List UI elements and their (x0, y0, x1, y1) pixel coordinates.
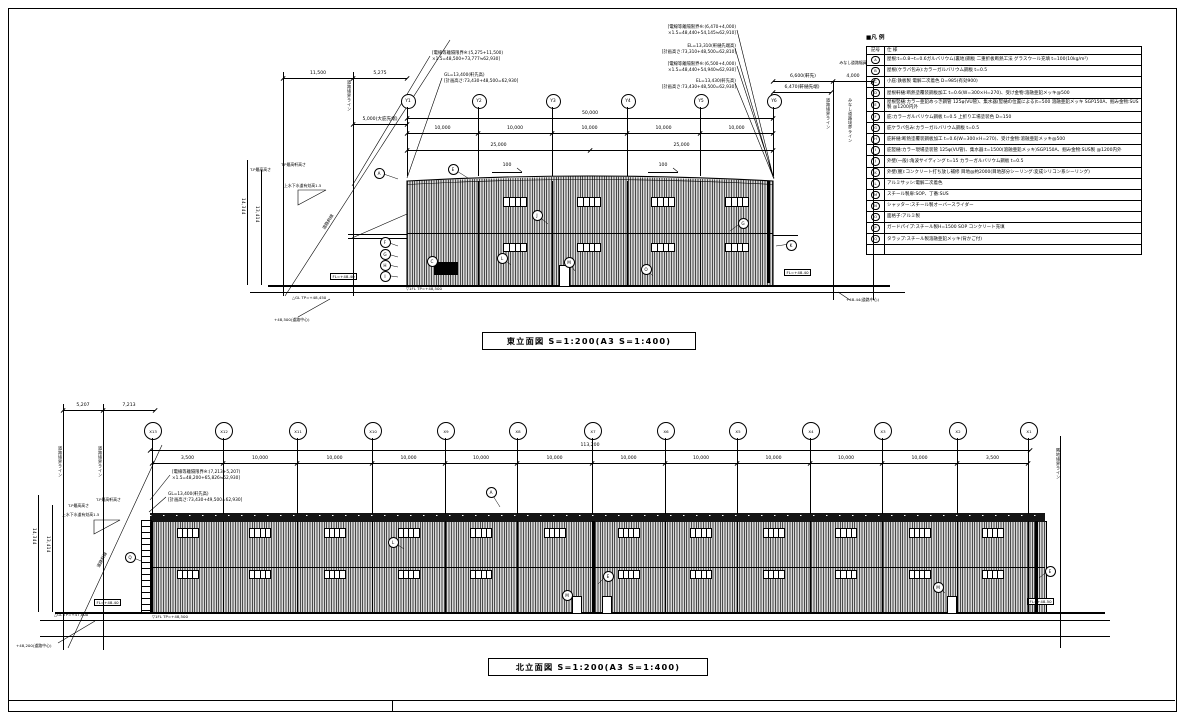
dim-label: 7,213 (122, 404, 135, 409)
north-tp-eave-label: T.P最高軒高さ (96, 498, 121, 502)
legend-symbol-cell: G (867, 123, 885, 134)
roof-slope-line (492, 172, 522, 173)
window (835, 528, 857, 538)
door (559, 265, 570, 287)
window-pane (521, 244, 526, 251)
window-pane (634, 529, 638, 537)
window (177, 570, 199, 579)
callout-bubble: E (1045, 566, 1056, 577)
east-note-clearance-right-1: [電線等離隔限界※:(6,470+4,000) ×1.5=48,440+54,1… (642, 25, 736, 37)
grid-bubble: X8 (509, 422, 527, 440)
window (470, 570, 492, 579)
vdim-label: 13,414 (46, 536, 50, 553)
window (690, 570, 712, 579)
window (763, 570, 785, 579)
window-pane (669, 198, 674, 206)
note-line: ×1.5=48,500+73,777≒62,930] (432, 57, 503, 63)
legend-row: K外壁(腰):コンクリート打ち放し補修 目地@約2000(目地部分シーリング:変… (867, 167, 1142, 178)
grid-bubble: Y1 (401, 94, 416, 109)
canopy-line (348, 234, 407, 235)
legend-empty-row (867, 245, 1142, 255)
road-boundary-line (103, 404, 104, 650)
legend-spec-cell: 小庇:鉄板製 電解二次着色 D=985(有効900) (885, 76, 1142, 87)
note-line: [計画高さ:73,430+49,500=62,930] (168, 498, 242, 504)
north-road-center-level: +48,200(道路中心) (16, 644, 51, 648)
wall-ladder (141, 520, 152, 612)
window-pane (414, 571, 418, 578)
legend-col-spec: 仕 様 (885, 47, 1142, 55)
legend-row: H庇軒樋:断熱塗覆装鋼板加工 t=0.6(W=300×H=270)、受け金物:溶… (867, 134, 1142, 145)
window (503, 243, 527, 252)
grid-bubble: Y2 (472, 94, 487, 109)
deemed-boundary-line (873, 81, 874, 300)
dim-label: 6,600(軒先) (790, 75, 816, 80)
window-pane (998, 529, 1002, 537)
dim-label: 10,000 (838, 457, 854, 462)
window (982, 570, 1004, 579)
bay-joint-line (592, 521, 593, 612)
north-title-text: 北立面図 S=1:200(A3 S=1:400) (516, 661, 680, 673)
dim-label: 10,000 (765, 457, 781, 462)
dim-label: 4,000 (846, 75, 859, 80)
north-elevation-title: 北立面図 S=1:200(A3 S=1:400) (488, 658, 708, 676)
grid-line (552, 107, 553, 177)
east-road-center-level-right: +48.44(道路中心) (846, 298, 879, 302)
legend-symbol-cell: H (867, 134, 885, 145)
extension-line (283, 72, 284, 296)
grid-bubble: X12 (215, 422, 233, 440)
grid-bubble: X10 (364, 422, 382, 440)
window (982, 528, 1004, 538)
north-note-eave-height: GL=13,400(軒先高) [計画高さ:73,430+49,500=62,93… (168, 492, 242, 504)
dim-label: 10,000 (252, 457, 268, 462)
east-facade-siding (407, 176, 773, 285)
legend-spec-cell: タラップ:スチール製溶融亜鉛メッキ(背かご付) (885, 234, 1142, 245)
north-parapet-coping (150, 513, 1045, 522)
legend-row: G庇ケラバ包み:カラーガルバリウム鋼板 t=0.5 (867, 123, 1142, 134)
downspout (767, 181, 770, 283)
legend-title: ■凡 例 (866, 36, 884, 42)
legend-row: C小庇:鉄板製 電解二次着色 D=985(有効900) (867, 76, 1142, 87)
dim-label: 113,200 (581, 444, 600, 449)
window (503, 197, 527, 207)
callout-bubble: G (738, 218, 749, 229)
sheet-bottom-strip-line (8, 700, 1175, 701)
legend-spec-cell: 屋根竪樋:カラー亜鉛めっき鋼管 125φ(VU管)、集水器(竪樋の位置による)t… (885, 99, 1142, 112)
dim-line (283, 78, 407, 79)
bay-joint-line (552, 181, 553, 285)
bay-joint-line (478, 181, 479, 285)
bay-joint-line (882, 521, 883, 612)
east-deemed-road-width-label: みなし道路幅員 (839, 61, 866, 65)
window (651, 243, 675, 252)
legend-symbol-cell: A (867, 54, 885, 65)
grid-bubble: X5 (729, 422, 747, 440)
legend-row: Qタラップ:スチール製溶融亜鉛メッキ(背かご付) (867, 234, 1142, 245)
door (602, 596, 612, 614)
downspout (1035, 521, 1038, 612)
east-title-text: 東立面図 S=1:200(A3 S=1:400) (507, 335, 671, 347)
legend-row: Mスチール製扉:SOP、丁番:SUS (867, 189, 1142, 200)
dim-label: 10,000 (400, 457, 416, 462)
window-pane (925, 529, 929, 537)
legend-spec-cell: ガードパイプ:スチール製H=1500 SOP コンクリート充填 (885, 223, 1142, 234)
window (398, 570, 420, 579)
legend-spec-cell: 庇ケラバ包み:カラーガルバリウム鋼板 t=0.5 (885, 123, 1142, 134)
legend-col-symbol: 記号 (867, 47, 885, 55)
legend-symbol-cell: D (867, 88, 885, 99)
callout-bubble: J (532, 210, 543, 221)
legend-spec-cell: アルミサッシ:電解二次着色 (885, 178, 1142, 189)
bay-joint-line (665, 521, 666, 612)
window-pane (852, 529, 856, 537)
window-pane (707, 571, 711, 578)
window (177, 528, 199, 538)
dim-line (150, 450, 1030, 451)
shutter-door (434, 262, 458, 275)
window (398, 528, 420, 538)
dim-label: 10,000 (620, 457, 636, 462)
legend-symbol-cell: K (867, 167, 885, 178)
dim-label: 5,000(大庇先端) (362, 118, 397, 123)
legend-row: D屋根軒樋:断熱塗覆装鋼板加工 t=0.6(W=300×H=270)、受け金物:… (867, 88, 1142, 99)
window-pane (340, 571, 344, 578)
north-note-clearance: [電線等離隔限界※:(7,213+5,207) ×1.5=48,200+65,8… (172, 470, 240, 482)
window-pane (669, 244, 674, 251)
dim-label: 50,000 (582, 112, 598, 117)
legend-spec-cell: 屋根(ケラバ包み):カラーガルバリウム鋼板 t=0.5 (885, 65, 1142, 76)
grid-line (700, 107, 701, 177)
legend-symbol-cell: M (867, 189, 885, 200)
legend-symbol-cell: F (867, 112, 885, 123)
bay-joint-line (627, 181, 628, 285)
dim-label: 10,000 (911, 457, 927, 462)
legend-spec-cell: 外壁(一般):角波サイディング t=15 カラーガルバリウム鋼板 t=0.5 (885, 156, 1142, 167)
bay-joint-line (517, 521, 518, 612)
ground-line (250, 292, 905, 293)
window (324, 528, 346, 538)
window-pane (414, 529, 418, 537)
window-pane (193, 529, 197, 537)
east-road-boundary-label-right: 道路境界ライン (826, 98, 830, 130)
legend-symbol-cell: N (867, 200, 885, 211)
grid-bubble: Y3 (546, 94, 561, 109)
dim-label: 3,500 (181, 457, 194, 462)
callout-bubble: M (933, 582, 944, 593)
wall-band-line (150, 567, 1045, 568)
drawing-sheet: ■凡 例 記号 仕 様 A屋根:t=0.8~t=0.6ガルバリウム(裏地)鋼板 … (0, 0, 1185, 721)
window (577, 197, 601, 207)
window-pane (779, 529, 783, 537)
window-pane (852, 571, 856, 578)
dim-label: 10,000 (326, 457, 342, 462)
window (470, 528, 492, 538)
callout-bubble: E (448, 164, 459, 175)
vdim-label: 13,414 (255, 206, 259, 223)
legend-symbol-cell: C (867, 76, 885, 87)
dim-label: 25,000 (673, 144, 689, 149)
window-pane (340, 529, 344, 537)
grid-bubble: X7 (584, 422, 602, 440)
vdim-line (247, 160, 248, 285)
legend-symbol-cell: E (867, 99, 885, 112)
east-gl-level-label: △GL TP=+48,450 (292, 296, 326, 300)
dim-label: 5,275 (373, 72, 386, 77)
dim-line (63, 410, 155, 411)
adjacent-boundary-line (1060, 436, 1061, 648)
east-sewer-clearance-label: 上水下水道有効高1.5 (284, 184, 321, 188)
legend-spec-cell: 屋根軒樋:断熱塗覆装鋼板加工 t=0.6(W=300×H=270)、受け金物:溶… (885, 88, 1142, 99)
legend-spec-cell: 庇軒樋:断熱塗覆装鋼板加工 t=0.6(W=300×H=270)、受け金物:溶融… (885, 134, 1142, 145)
callout-bubble: I (380, 271, 391, 282)
vdim-line (261, 170, 262, 285)
legend-symbol-cell: L (867, 178, 885, 189)
grid-bubble: X11 (289, 422, 307, 440)
north-1fl-level-label: ▽1FL TP=+48,500 (152, 615, 188, 619)
dim-line (407, 118, 773, 119)
window-pane (193, 571, 197, 578)
dim-label: 10,000 (581, 127, 597, 132)
sheet-bottom-strip-tick (392, 700, 393, 711)
legend-spec-cell: 屋根:t=0.8~t=0.6ガルバリウム(裏地)鋼板 二重折板断熱工法 グラスウ… (885, 54, 1142, 65)
legend-row: Lアルミサッシ:電解二次着色 (867, 178, 1142, 189)
dim-label: 25,000 (490, 144, 506, 149)
bay-joint-line (445, 521, 446, 612)
window-pane (998, 571, 1002, 578)
legend-symbol-cell: I (867, 145, 885, 156)
legend-symbol-circle: A (871, 56, 880, 65)
canopy-line (773, 235, 798, 236)
note-line: [電線等離隔限界※:(7,213+5,207) (172, 470, 240, 476)
legend-row: O面格子:アルミ製 (867, 211, 1142, 222)
east-roof-slope-mark-2: 100 (659, 164, 668, 169)
road-boundary-line (833, 81, 834, 300)
dim-label: 10,000 (655, 127, 671, 132)
window-pane (266, 571, 270, 578)
east-deemed-boundary-label: みなし道路境界ライン (848, 98, 852, 143)
grid-bubble: X2 (949, 422, 967, 440)
window (618, 528, 640, 538)
legend-symbol-circle: B (871, 67, 880, 76)
callout-bubble: E (603, 571, 614, 582)
east-elevation-title: 東立面図 S=1:200(A3 S=1:400) (482, 332, 696, 350)
dim-label: 11,500 (310, 72, 326, 77)
east-roof-slope-mark-1: 100 (503, 164, 512, 169)
dim-label: 10,000 (693, 457, 709, 462)
callout-bubble: F (380, 237, 391, 248)
north-road-boundary-label-1: 道路境界ライン (58, 446, 62, 478)
dim-label: 10,000 (434, 127, 450, 132)
east-note-eave-height-left: GL=13,400(軒先高) [計画高さ:73,430+48,500=62,93… (444, 73, 518, 85)
legend-row: Pガードパイプ:スチール製H=1500 SOP コンクリート充填 (867, 223, 1142, 234)
vdim-line (38, 495, 39, 612)
callout-bubble: M (564, 257, 575, 268)
grid-bubble: Y5 (694, 94, 709, 109)
note-line: [計画高さ:73,430+48,500=62,930] (642, 85, 736, 91)
east-note-gutter-height: EL=13,310(軒樋先端高) [計画高さ:73,310+48,500=62,… (642, 44, 736, 56)
callout-bubble: H (380, 260, 391, 271)
dim-line (407, 133, 773, 134)
road-boundary-line (353, 72, 354, 296)
window-pane (521, 198, 526, 206)
roof-slope-line (648, 172, 678, 173)
road-boundary-line (63, 404, 64, 650)
grid-bubble: X4 (802, 422, 820, 440)
window (690, 528, 712, 538)
legend-spec-cell: シャッター:スチール製オーバースライダー (885, 200, 1142, 211)
window-pane (634, 571, 638, 578)
legend-row: A屋根:t=0.8~t=0.6ガルバリウム(裏地)鋼板 二重折板断熱工法 グラス… (867, 54, 1142, 65)
legend-header-row: 記号 仕 様 (867, 47, 1142, 55)
callout-bubble: Q (125, 552, 136, 563)
legend-table: 記号 仕 様 A屋根:t=0.8~t=0.6ガルバリウム(裏地)鋼板 二重折板断… (866, 46, 1142, 255)
legend-symbol-cell: P (867, 223, 885, 234)
east-note-clearance-right-2: [電線等離隔限界※:(6,500+4,000) ×1.5=48,440+54,9… (642, 62, 736, 74)
dim-line (773, 92, 831, 93)
grid-bubble: Y4 (621, 94, 636, 109)
note-line: [計画高さ:73,430+48,500=62,930] (444, 79, 518, 85)
bay-joint-line (737, 521, 738, 612)
vdim-label: 14,344 (32, 528, 36, 545)
grid-bubble: X1 (1020, 422, 1038, 440)
window (909, 528, 931, 538)
callout-bubble: G (380, 249, 391, 260)
window-pane (743, 244, 748, 251)
grid-bubble: Y6 (767, 94, 782, 109)
legend-row: Nシャッター:スチール製オーバースライダー (867, 200, 1142, 211)
north-tp-max-label: T.P最高高さ (68, 504, 89, 508)
callout-bubble: A (486, 487, 497, 498)
bay-joint-line (223, 521, 224, 612)
legend-row: E屋根竪樋:カラー亜鉛めっき鋼管 125φ(VU管)、集水器(竪樋の位置による)… (867, 99, 1142, 112)
callout-bubble: K (786, 240, 797, 251)
window-pane (595, 244, 600, 251)
window (835, 570, 857, 579)
door (572, 596, 582, 614)
bay-joint-line (1028, 521, 1029, 612)
window-pane (487, 571, 491, 578)
window-pane (925, 571, 929, 578)
legend-spec-cell: 外壁(腰):コンクリート打ち放し補修 目地@約2000(目地部分シーリング:変成… (885, 167, 1142, 178)
callout-bubble: L (497, 253, 508, 264)
window (249, 570, 271, 579)
dim-label: 10,000 (546, 457, 562, 462)
grid-bubble: X13 (144, 422, 162, 440)
note-line: ×1.5=48,440+54,940≒62,930] (642, 68, 736, 74)
callout-bubble: O (641, 264, 652, 275)
window (249, 528, 271, 538)
north-fl-level-box-left: FL=+48.40 (94, 599, 121, 606)
legend-spec-cell: 庇竪樋:カラー現場塗装管 125φ(VU管)、集水器:t=1500(溶融亜鉛メッ… (885, 145, 1142, 156)
legend-row: F庇:カラーガルバリウム鋼板 t=0.5 上折り工場塗装色 D=150 (867, 112, 1142, 123)
window (725, 197, 749, 207)
window (324, 570, 346, 579)
legend-symbol-cell: O (867, 211, 885, 222)
note-line: [計画高さ:73,310+48,500=62,810] (642, 50, 736, 56)
window-pane (487, 529, 491, 537)
east-road-center-level-left: +48,500(道路中心) (274, 318, 309, 322)
legend-spec-cell: スチール製扉:SOP、丁番:SUS (885, 189, 1142, 200)
callout-bubble: M (562, 590, 573, 601)
legend-symbol-cell: J (867, 156, 885, 167)
dim-label: 10,000 (473, 457, 489, 462)
legend-row: B屋根(ケラバ包み):カラーガルバリウム鋼板 t=0.5 (867, 65, 1142, 76)
dim-label: 6,470(軒樋先端) (784, 86, 819, 91)
north-fl-level-box-right: FL=+48.50 (1027, 598, 1054, 605)
north-sewer-clearance-label: 上水下水道有効高1.5 (62, 513, 99, 517)
window (909, 570, 931, 579)
bay-joint-line (152, 521, 153, 612)
dim-line (353, 124, 407, 125)
bay-joint-line (372, 521, 373, 612)
note-line: ×1.5=48,440+54,145≒62,910] (642, 31, 736, 37)
east-tp-eave-label: T.P最高軒高さ (281, 163, 306, 167)
callout-bubble: A (374, 168, 385, 179)
callout-bubble: L (388, 537, 399, 548)
east-1fl-level-label: ▽1FL TP=+48,500 (406, 287, 442, 291)
east-road-boundary-label-left: 道路境界ライン (347, 80, 351, 112)
legend-symbol-cell: Q (867, 234, 885, 245)
dim-label: 3,500 (986, 457, 999, 462)
grid-bubble: X9 (437, 422, 455, 440)
ground-line (40, 636, 1110, 637)
vdim-line (52, 505, 53, 612)
window-pane (707, 529, 711, 537)
window (544, 528, 566, 538)
dim-label: 10,000 (728, 127, 744, 132)
east-note-clearance-left: [電線等離隔限界※:(5,275+11,500) ×1.5=48,500+73,… (432, 51, 503, 63)
window-pane (743, 198, 748, 206)
legend-spec-cell: 庇:カラーガルバリウム鋼板 t=0.5 上折り工場塗装色 D=150 (885, 112, 1142, 123)
legend-row: J外壁(一般):角波サイディング t=15 カラーガルバリウム鋼板 t=0.5 (867, 156, 1142, 167)
window (577, 243, 601, 252)
window-pane (560, 529, 564, 537)
ground-line (268, 285, 890, 287)
window (725, 243, 749, 252)
bay-joint-line (957, 521, 958, 612)
vdim-label: 14,344 (241, 198, 245, 215)
east-note-eave-height-right: EL=13,430(軒先高) [計画高さ:73,430+48,500=62,93… (642, 79, 736, 91)
grid-line (478, 107, 479, 177)
dim-label: 10,000 (507, 127, 523, 132)
window (651, 197, 675, 207)
dim-line (773, 81, 873, 82)
legend-row: I庇竪樋:カラー現場塗装管 125φ(VU管)、集水器:t=1500(溶融亜鉛メ… (867, 145, 1142, 156)
grid-line (627, 107, 628, 177)
door (947, 596, 957, 614)
window (618, 570, 640, 579)
callout-bubble: C (427, 256, 438, 267)
note-line: [電線等離隔限界※:(5,275+11,500) (432, 51, 503, 57)
window-pane (779, 571, 783, 578)
north-road-boundary-label-2: 道路境界ライン (98, 446, 102, 478)
bay-joint-line (810, 521, 811, 612)
bay-joint-line (700, 181, 701, 285)
grid-bubble: X3 (874, 422, 892, 440)
bay-joint-line (297, 521, 298, 612)
legend-spec-cell: 面格子:アルミ製 (885, 211, 1142, 222)
grid-bubble: X6 (657, 422, 675, 440)
window-pane (266, 529, 270, 537)
window (763, 528, 785, 538)
canopy-line (348, 238, 407, 239)
ground-line (40, 620, 1110, 621)
dim-label: 5,207 (76, 404, 89, 409)
legend-symbol-cell: B (867, 65, 885, 76)
east-fl-level-box-right: FL=+48.40 (784, 269, 811, 276)
window-pane (595, 198, 600, 206)
note-line: ×1.5=48,200+65,826≒52,930] (172, 476, 240, 482)
